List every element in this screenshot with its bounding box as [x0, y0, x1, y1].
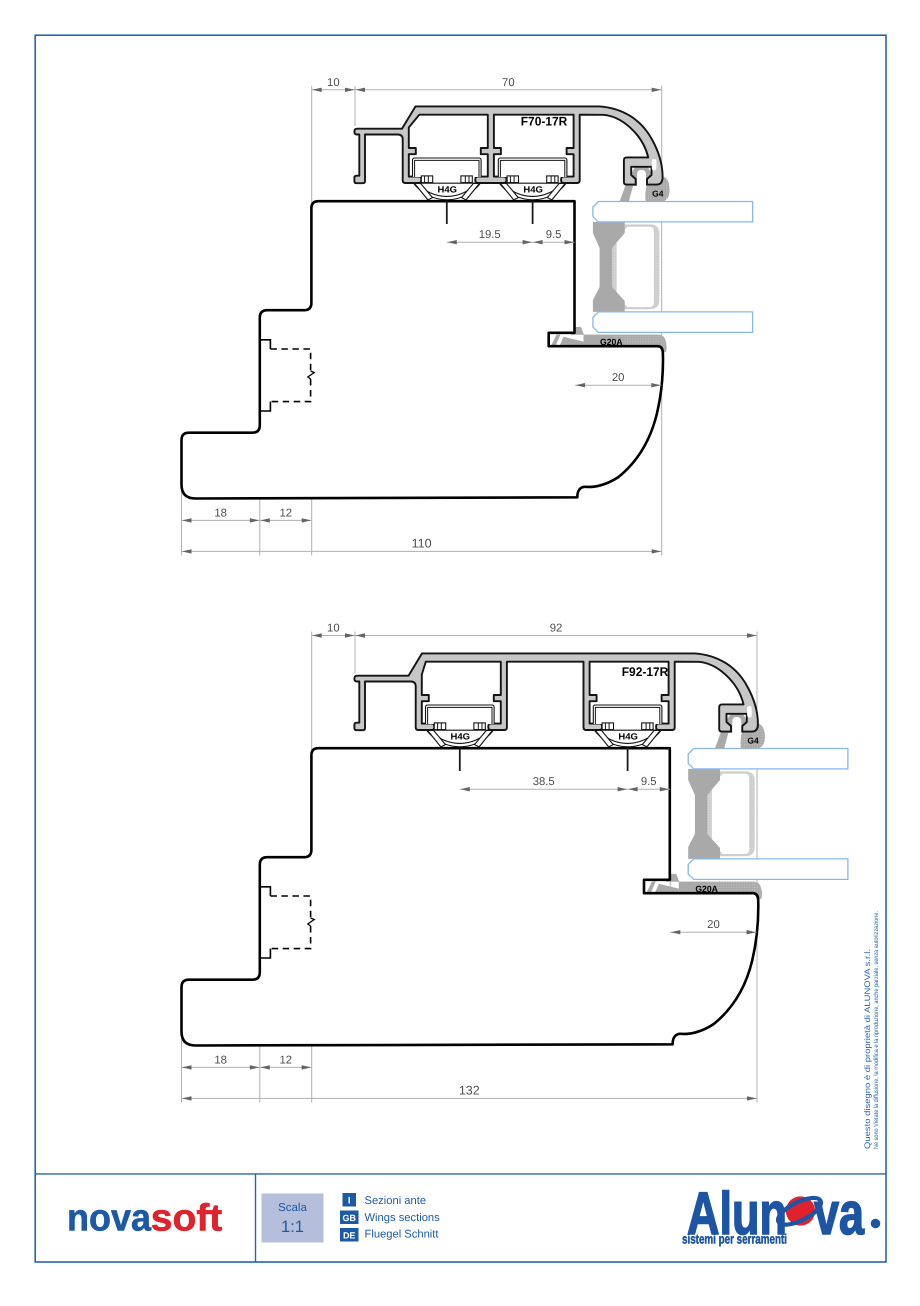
- svg-text:Sezioni ante: Sezioni ante: [365, 1195, 427, 1207]
- svg-text:38.5: 38.5: [533, 776, 555, 788]
- svg-text:12: 12: [279, 1054, 292, 1066]
- svg-text:H4G: H4G: [438, 184, 458, 194]
- svg-text:19.5: 19.5: [479, 229, 501, 241]
- svg-text:Fluegel Schnitt: Fluegel Schnitt: [365, 1229, 440, 1241]
- svg-text:soft: soft: [151, 1198, 223, 1240]
- svg-text:GB: GB: [342, 1213, 356, 1223]
- svg-text:132: 132: [459, 1083, 480, 1097]
- svg-text:20: 20: [612, 372, 625, 384]
- svg-text:9.5: 9.5: [641, 776, 657, 788]
- svg-text:Scala: Scala: [278, 1202, 307, 1214]
- svg-text:10: 10: [327, 77, 340, 89]
- svg-text:H4G: H4G: [451, 731, 471, 741]
- svg-text:92: 92: [550, 623, 563, 635]
- svg-text:I: I: [348, 1195, 351, 1206]
- svg-text:18: 18: [214, 507, 227, 519]
- svg-text:110: 110: [412, 536, 432, 550]
- svg-text:20: 20: [707, 919, 720, 931]
- svg-text:H4G: H4G: [523, 184, 543, 194]
- svg-text:nova: nova: [67, 1198, 152, 1240]
- svg-text:Questo disegno è di proprietà: Questo disegno è di proprietà di ALUNOVA…: [863, 949, 872, 1149]
- svg-text:70: 70: [502, 77, 515, 89]
- svg-text:G4: G4: [652, 189, 664, 199]
- svg-text:9.5: 9.5: [546, 229, 562, 241]
- svg-text:18: 18: [214, 1054, 227, 1066]
- svg-text:Wings sections: Wings sections: [365, 1212, 441, 1224]
- svg-text:F70-17R: F70-17R: [521, 114, 568, 128]
- svg-text:F92-17R: F92-17R: [622, 665, 669, 679]
- svg-text:sistemi per serramenti: sistemi per serramenti: [682, 1232, 787, 1247]
- svg-text:12: 12: [279, 507, 292, 519]
- svg-text:DE: DE: [343, 1230, 356, 1240]
- svg-text:H4G: H4G: [618, 731, 638, 741]
- svg-text:Ne sono Vietate la diffusione,: Ne sono Vietate la diffusione, la modifi…: [873, 911, 880, 1149]
- svg-text:va: va: [814, 1180, 864, 1247]
- svg-text:10: 10: [327, 623, 340, 635]
- svg-text:1:1: 1:1: [281, 1218, 304, 1236]
- svg-text:G4: G4: [747, 736, 759, 746]
